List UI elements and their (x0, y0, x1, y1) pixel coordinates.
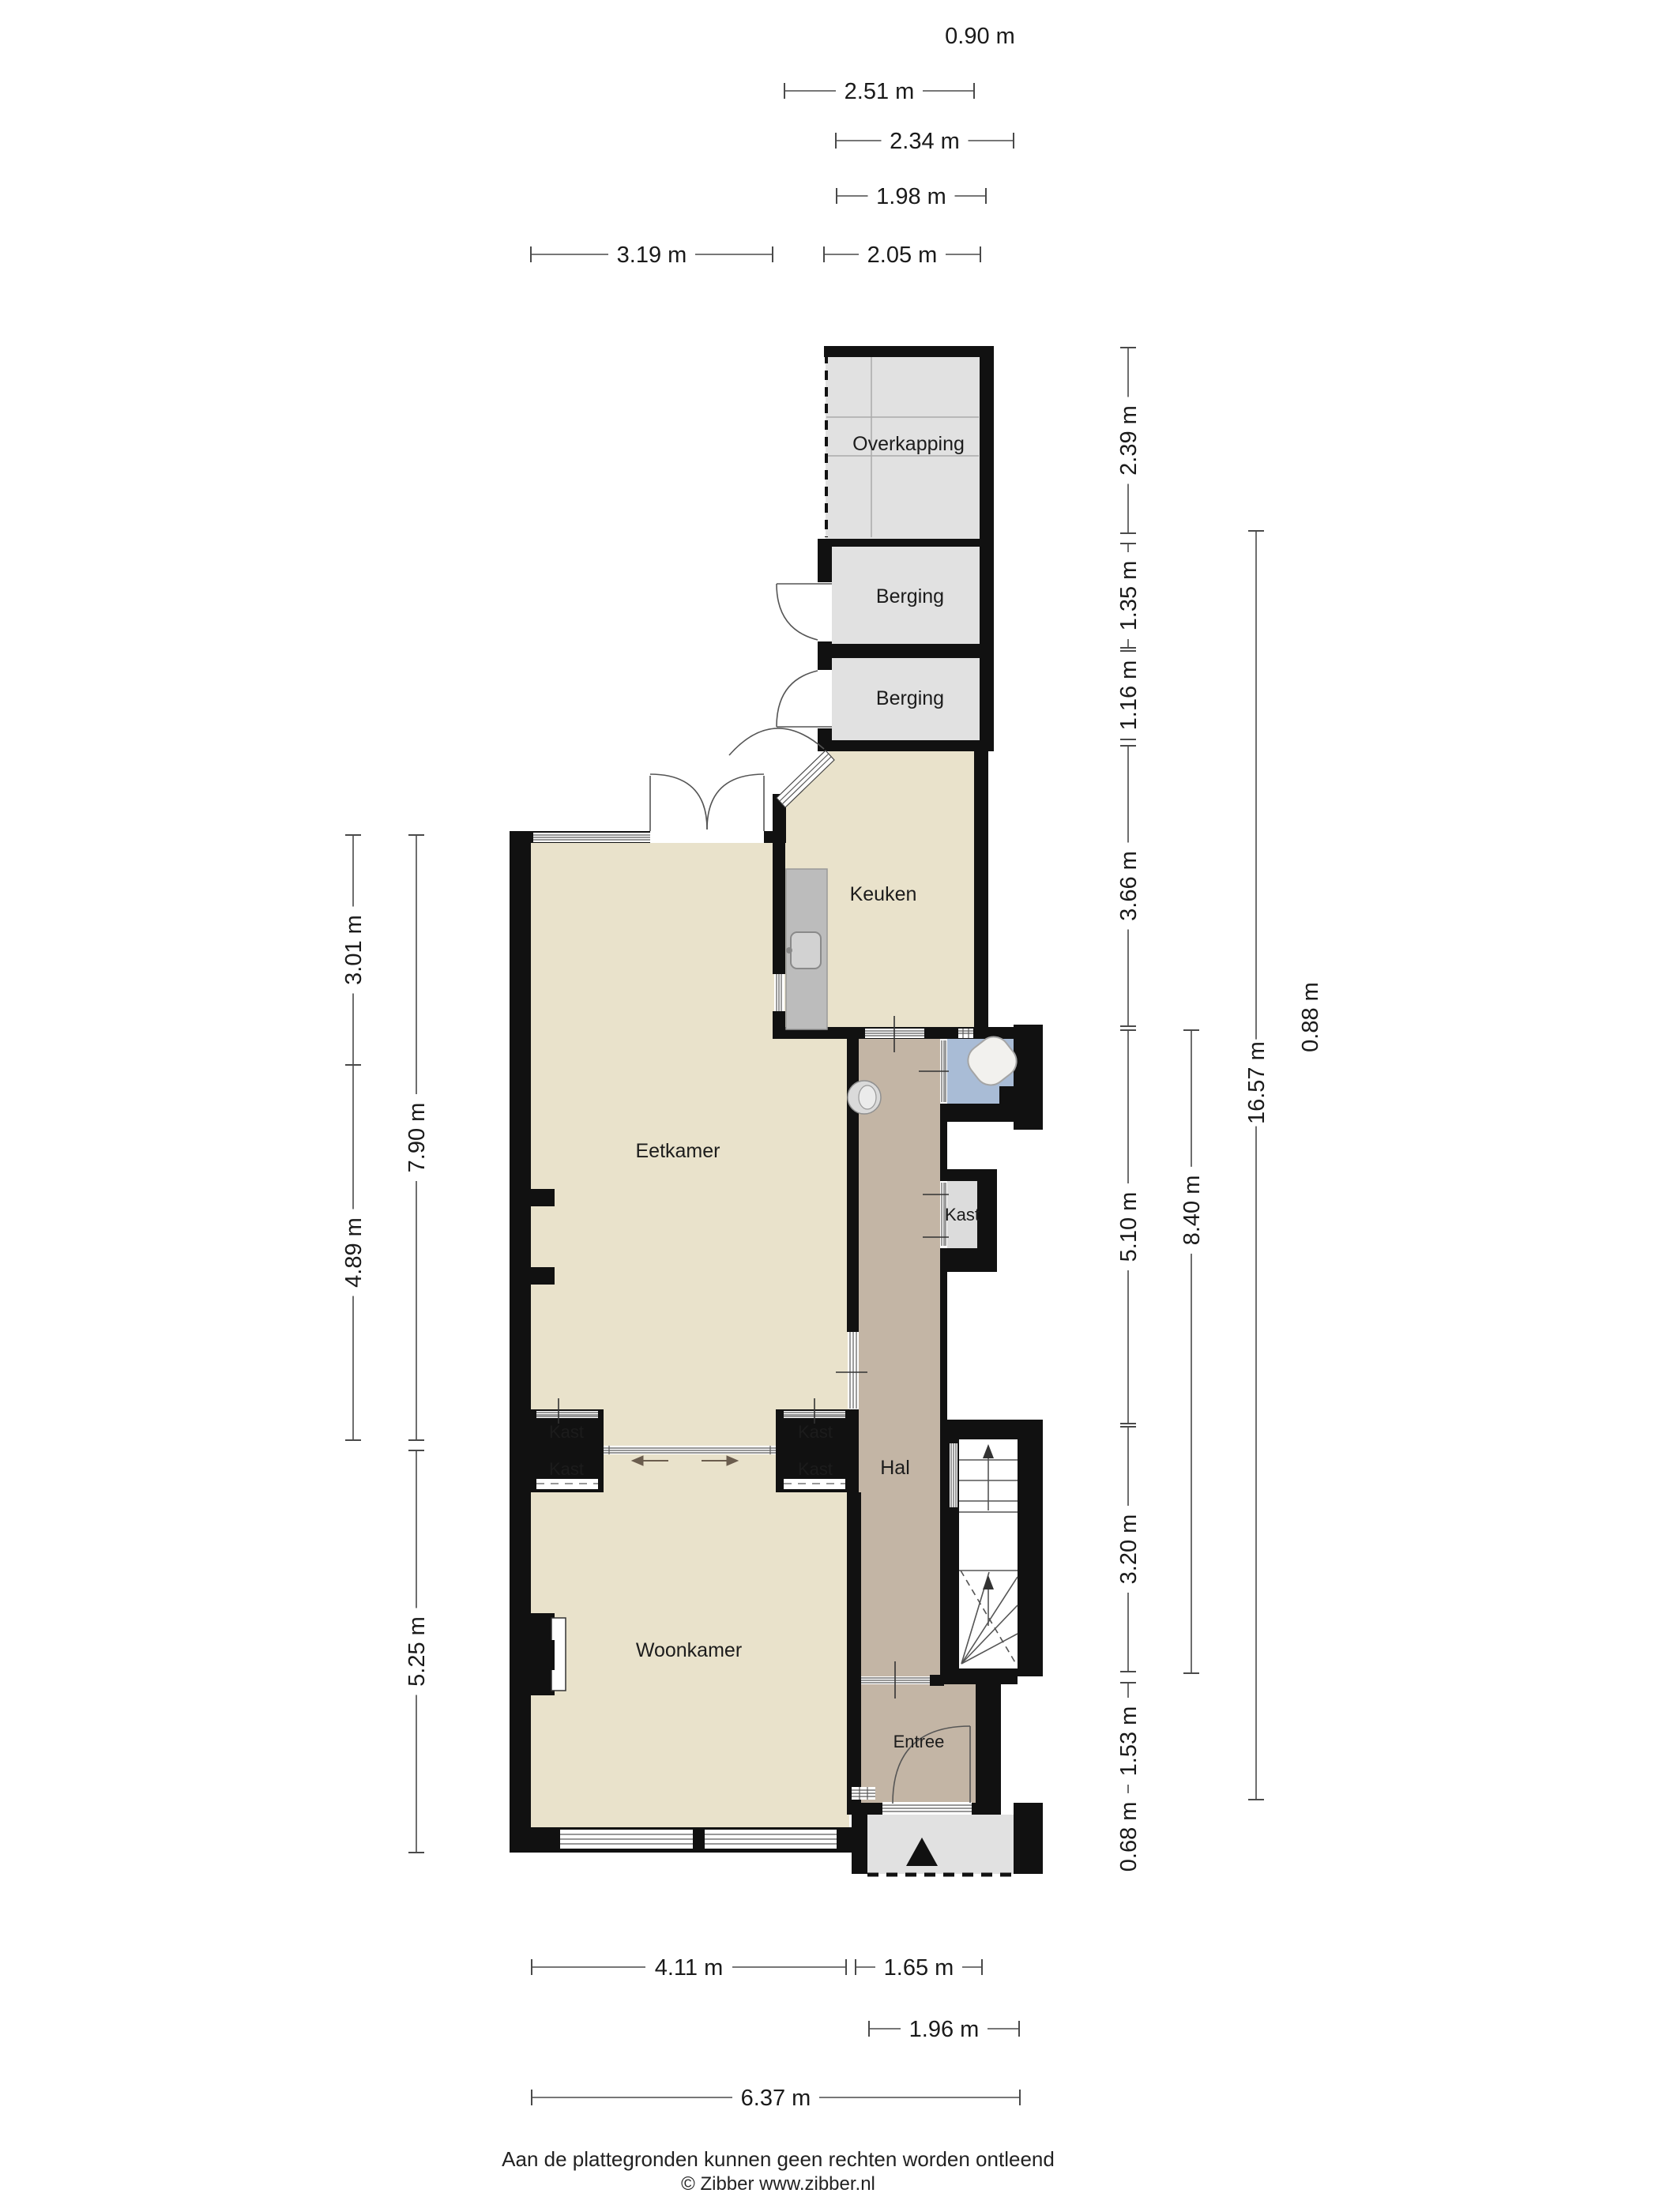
hal-floor (859, 1039, 940, 1684)
dim-d239: 2.39 m (1114, 348, 1142, 533)
label-kast-1: Kast (549, 1422, 584, 1442)
dim-d090: 0.90 m (937, 21, 1024, 50)
footer-credit: © Zibber www.zibber.nl (681, 2173, 875, 2195)
dim-label-d088: 0.88 m (1298, 982, 1323, 1052)
dim-label-d135: 1.35 m (1116, 561, 1142, 631)
dim-d525: 5.25 m (402, 1450, 431, 1853)
dim-d088: 0.88 m (1296, 974, 1324, 1061)
dim-label-d196: 1.96 m (909, 2017, 980, 2042)
dim-label-d116: 1.16 m (1116, 660, 1142, 731)
dim-d840: 8.40 m (1177, 1030, 1206, 1673)
dim-d790: 7.90 m (402, 835, 431, 1440)
dim-label-d165: 1.65 m (884, 1955, 954, 1981)
dim-label-d525: 5.25 m (404, 1616, 430, 1687)
dim-label-d366: 3.66 m (1116, 851, 1142, 921)
label-overkapping: Overkapping (852, 433, 965, 455)
dim-label-d153: 1.53 m (1116, 1706, 1142, 1777)
dim-label-d510: 5.10 m (1116, 1192, 1142, 1262)
dim-d196: 1.96 m (869, 2014, 1019, 2043)
label-eetkamer: Eetkamer (636, 1140, 720, 1162)
label-berging-1: Berging (876, 585, 944, 608)
dim-label-d1657: 16.57 m (1244, 1041, 1270, 1124)
dim-d301: 3.01 m (339, 835, 367, 1065)
dim-label-d637: 6.37 m (741, 2086, 811, 2111)
sliding-door (604, 1446, 776, 1454)
dim-d153: 1.53 m (1114, 1683, 1142, 1800)
dim-d320: 3.20 m (1114, 1427, 1142, 1672)
dim-d1657: 16.57 m (1242, 531, 1270, 1800)
dim-d251: 2.51 m (784, 77, 974, 105)
dim-d165: 1.65 m (856, 1953, 982, 1981)
front-door (882, 1802, 972, 1814)
dim-label-d411: 4.11 m (655, 1955, 724, 1981)
floorplan-svg: Overkapping Berging Berging Keuken Eetka… (0, 0, 1659, 2212)
dim-label-d251: 2.51 m (845, 79, 915, 104)
dim-d637: 6.37 m (532, 2083, 1020, 2112)
dim-label-d319: 3.19 m (617, 243, 687, 268)
dim-d234: 2.34 m (836, 126, 1014, 155)
label-berging-2: Berging (876, 687, 944, 709)
dim-label-d068: 0.68 m (1116, 1802, 1142, 1872)
dim-label-d234: 2.34 m (890, 129, 960, 154)
chimney-stub-lower (531, 1267, 555, 1285)
dim-label-d790: 7.90 m (404, 1103, 430, 1173)
dim-d489: 4.89 m (339, 1065, 367, 1440)
label-kast-5: Kast (945, 1205, 980, 1224)
porch-floor (867, 1815, 1014, 1874)
dim-d198: 1.98 m (837, 182, 986, 210)
dim-d411: 4.11 m (532, 1953, 846, 1981)
dim-d116: 1.16 m (1114, 651, 1142, 739)
footer-disclaimer: Aan de plattegronden kunnen geen rechten… (502, 2147, 1055, 2171)
label-kast-3: Kast (549, 1459, 584, 1479)
label-hal: Hal (880, 1457, 910, 1479)
eetkamer-hal-door (848, 1332, 859, 1409)
faucet (786, 947, 792, 954)
label-keuken: Keuken (850, 883, 917, 905)
dim-label-d090: 0.90 m (945, 24, 1015, 49)
dim-d366: 3.66 m (1114, 746, 1142, 1026)
dim-d510: 5.10 m (1114, 1030, 1142, 1424)
window-mullion (695, 1830, 702, 1849)
dim-d205: 2.05 m (824, 240, 980, 269)
dim-label-d205: 2.05 m (867, 243, 938, 268)
dim-label-d198: 1.98 m (876, 184, 946, 209)
dim-d068: 0.68 m (1114, 1793, 1142, 1880)
dim-d135: 1.35 m (1114, 544, 1142, 648)
french-door-opening (650, 831, 764, 843)
dim-label-d840: 8.40 m (1179, 1176, 1205, 1246)
kitchen-counter (786, 869, 827, 1029)
chimney-stub-upper (531, 1189, 555, 1206)
dim-label-d320: 3.20 m (1116, 1514, 1142, 1585)
label-kast-2: Kast (798, 1422, 833, 1442)
dim-label-d489: 4.89 m (341, 1217, 367, 1288)
label-woonkamer: Woonkamer (636, 1639, 742, 1661)
label-kast-4: Kast (798, 1459, 833, 1479)
hal-basin (848, 1081, 881, 1114)
dim-label-d239: 2.39 m (1116, 405, 1142, 476)
duct (999, 1086, 1015, 1104)
label-entree: Entree (893, 1732, 945, 1751)
kitchen-sink (791, 932, 821, 969)
dim-d319: 3.19 m (531, 240, 773, 269)
dim-label-d301: 3.01 m (341, 915, 367, 985)
